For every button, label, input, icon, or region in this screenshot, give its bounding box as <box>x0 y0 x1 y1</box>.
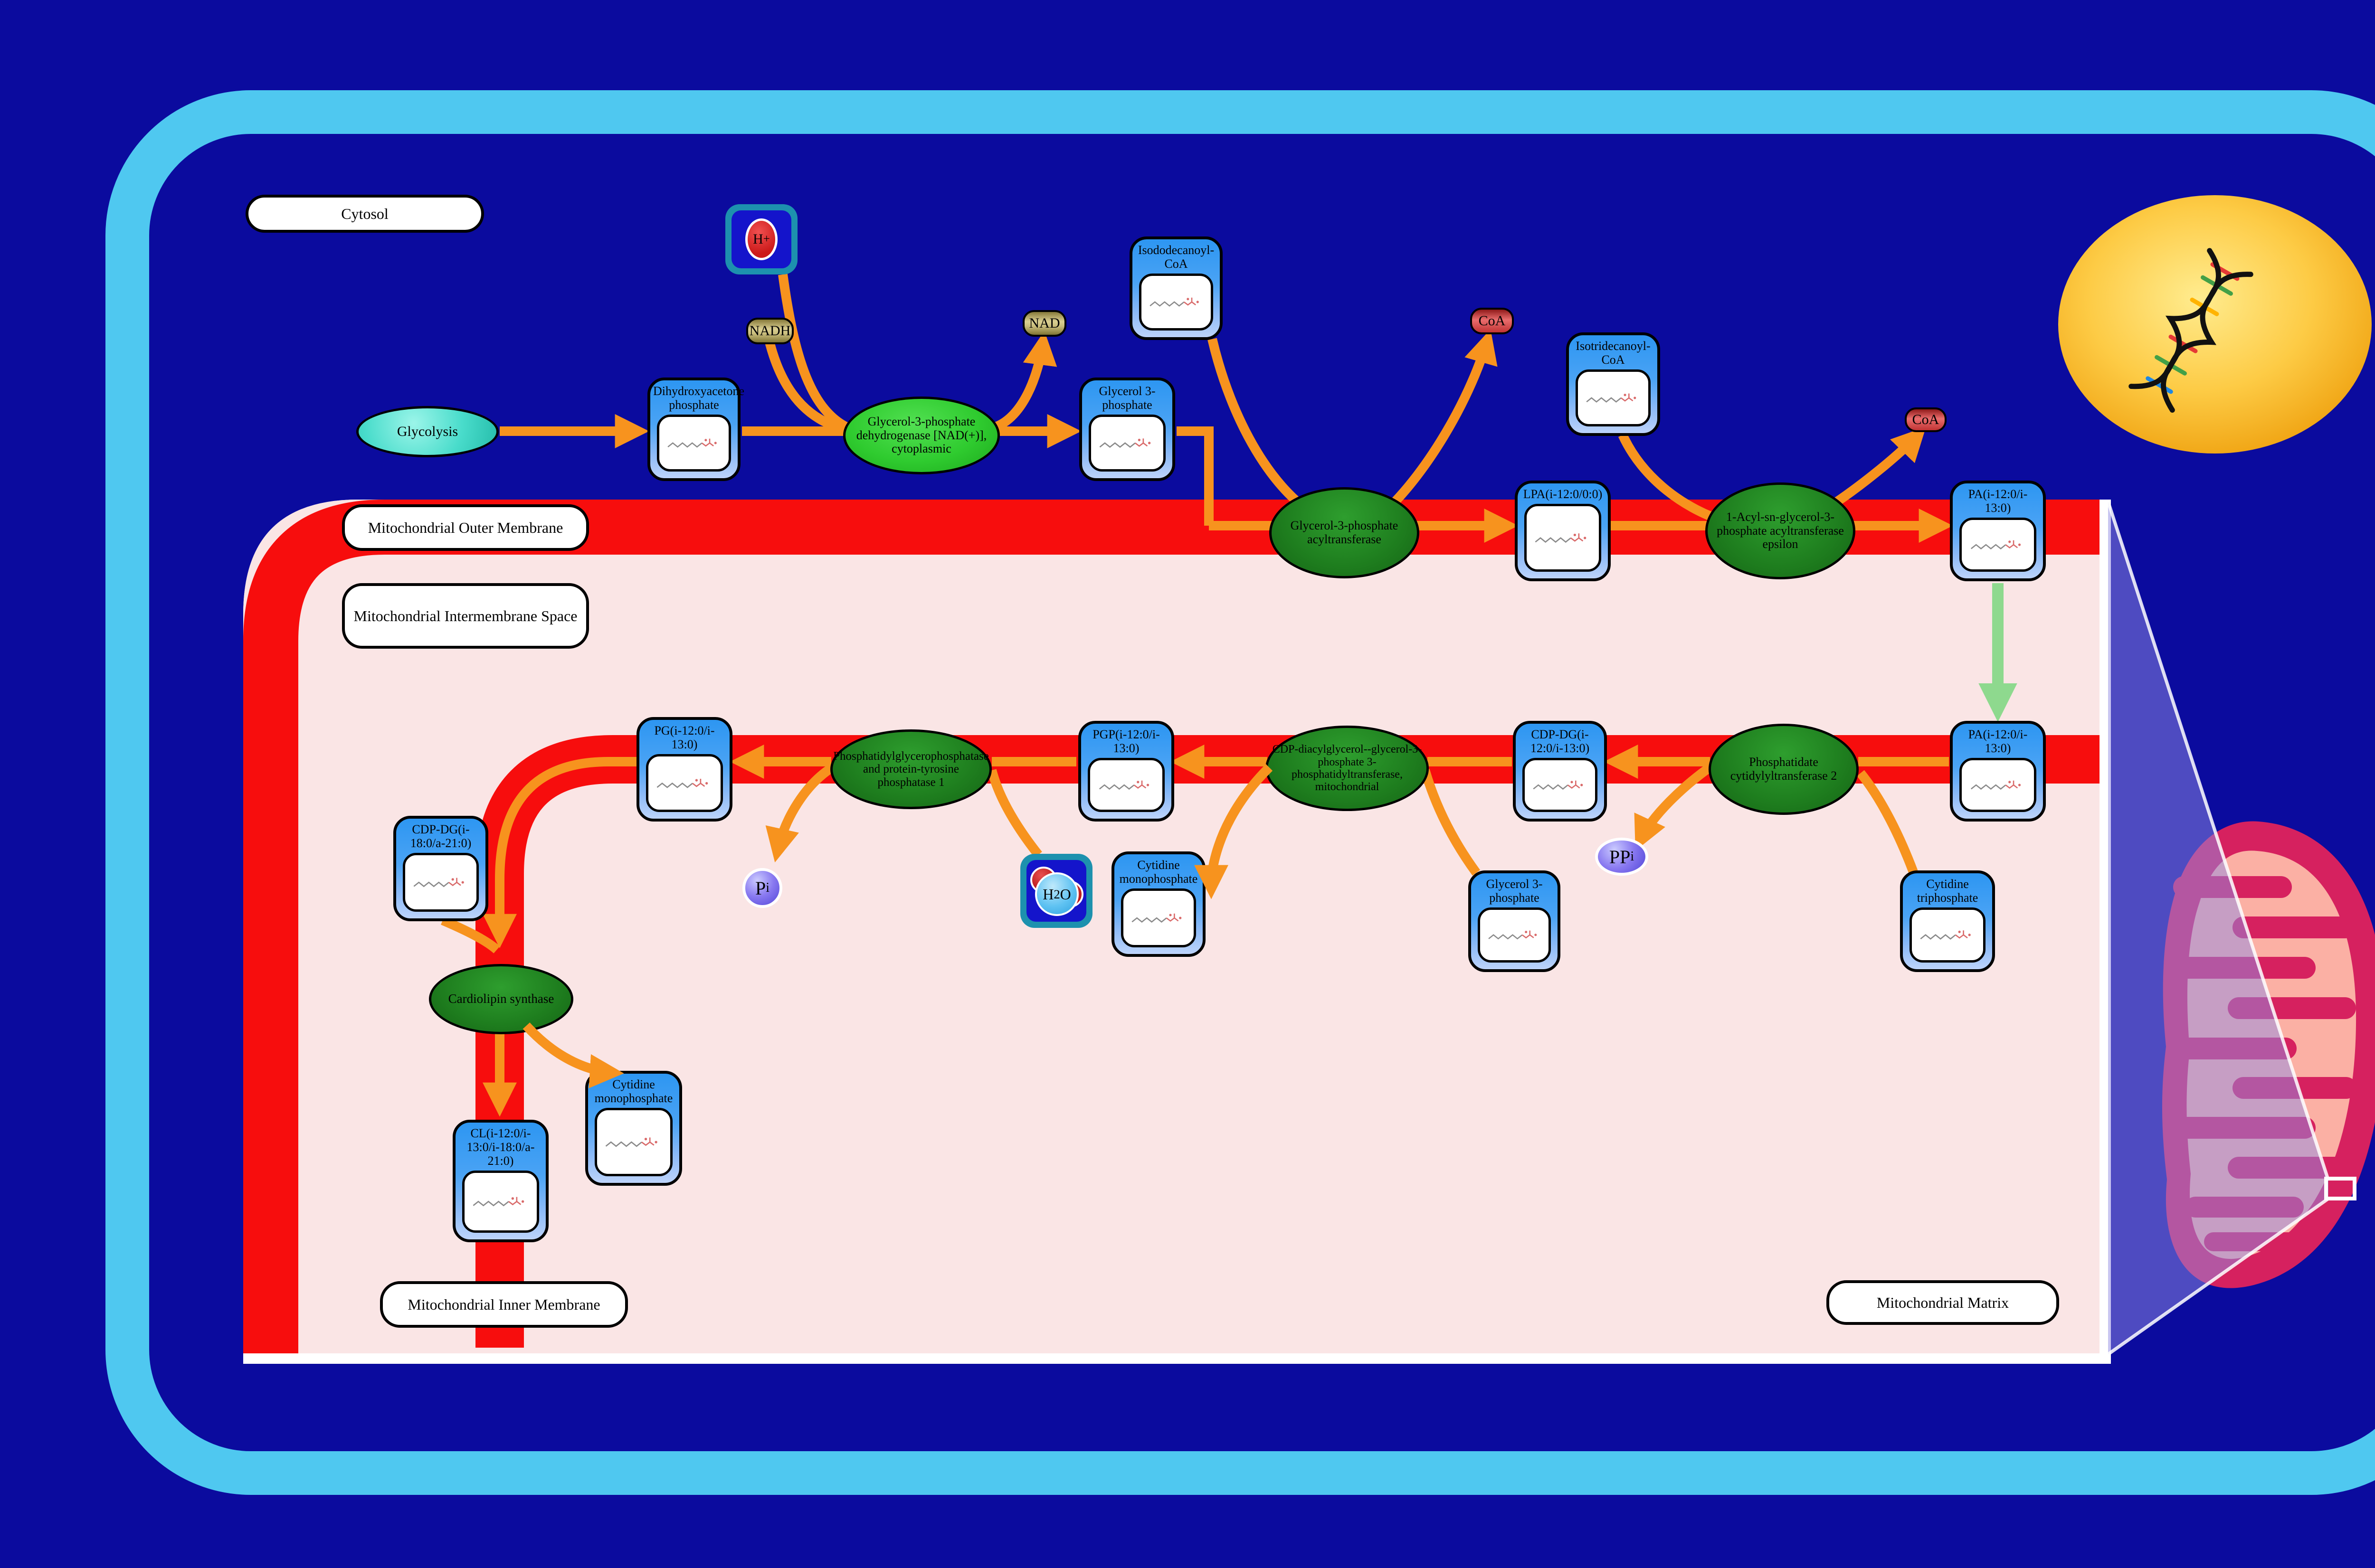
chemical-structure-icon <box>1088 758 1165 812</box>
chemical-structure-icon <box>1909 907 1985 963</box>
metabolite-label: CDP-DG(i-18:0/a-21:0) <box>396 819 485 851</box>
enzyme-cdp-dag-g3p-phosphatidyltransferase[interactable]: CDP-diacylglycerol--glycerol-3-phosphate… <box>1265 726 1429 811</box>
chemical-structure-icon <box>403 853 479 912</box>
compartment-label-text: Cytosol <box>341 205 389 223</box>
enzyme-label: 1-Acyl-sn-glycerol-3-phosphate acyltrans… <box>1708 509 1853 553</box>
compartment-label-text: Mitochondrial Matrix <box>1877 1294 2009 1312</box>
enzyme-label: Glycerol-3-phosphate acyltransferase <box>1272 517 1417 548</box>
cofactor-coa-2[interactable]: CoA <box>1905 407 1947 432</box>
chemical-structure-icon <box>1139 274 1213 331</box>
metabolite-label: PGP(i-12:0/i-13:0) <box>1081 724 1171 756</box>
metabolite-label: CDP-DG(i-12:0/i-13:0) <box>1516 724 1604 756</box>
enzyme-gpat[interactable]: Glycerol-3-phosphate acyltransferase <box>1269 487 1419 578</box>
enzyme-label: Phosphatidylglycerophosphatase and prote… <box>831 748 991 791</box>
chemical-structure-icon <box>1959 518 2036 572</box>
chemical-structure-icon <box>657 415 731 472</box>
metabolite-cdp-dg-1[interactable]: CDP-DG(i-12:0/i-13:0) <box>1513 721 1607 822</box>
enzyme-label: CDP-diacylglycerol--glycerol-3-phosphate… <box>1268 741 1426 795</box>
enzyme-agpat-epsilon[interactable]: 1-Acyl-sn-glycerol-3-phosphate acyltrans… <box>1705 482 1855 579</box>
metabolite-cytidine-triphosphate[interactable]: Cytidine triphosphate <box>1900 870 1995 972</box>
compartment-label-text: Mitochondrial Outer Membrane <box>368 519 563 537</box>
metabolite-cardiolipin[interactable]: CL(i-12:0/i-13:0/i-18:0/a-21:0) <box>453 1120 549 1242</box>
chemical-structure-icon <box>1089 415 1166 472</box>
pathway-node-glycolysis[interactable]: Glycolysis <box>356 406 499 457</box>
metabolite-glycerol-3-phosphate-cytosol[interactable]: Glycerol 3-phosphate <box>1079 378 1175 481</box>
metabolite-dhap[interactable]: Dihydroxyacetone phosphate <box>647 378 741 481</box>
metabolite-label: PA(i-12:0/i-13:0) <box>1953 724 2043 756</box>
metabolite-label: PA(i-12:0/i-13:0) <box>1953 483 2043 516</box>
metabolite-pa-inner[interactable]: PA(i-12:0/i-13:0) <box>1950 721 2046 822</box>
proton-icon: H+ <box>745 218 778 260</box>
metabolite-glycerol-3-phosphate-ims[interactable]: Glycerol 3-phosphate <box>1468 870 1560 972</box>
metabolite-label: CL(i-12:0/i-13:0/i-18:0/a-21:0) <box>456 1123 546 1169</box>
metabolite-isotridecanoyl-coa[interactable]: Isotridecanoyl-CoA <box>1566 332 1660 436</box>
enzyme-label: Cardiolipin synthase <box>446 990 556 1008</box>
metabolite-cdp-dg-2[interactable]: CDP-DG(i-18:0/a-21:0) <box>393 816 488 921</box>
chemical-structure-icon <box>595 1108 673 1176</box>
compartment-label-matrix: Mitochondrial Matrix <box>1826 1280 2059 1325</box>
pathway-canvas: CytosolMitochondrial Outer MembraneMitoc… <box>0 0 2375 1568</box>
chemical-structure-icon <box>462 1171 539 1233</box>
chemical-structure-icon <box>1522 758 1597 812</box>
metabolite-label: Glycerol 3-phosphate <box>1082 380 1172 413</box>
metabolite-pa-outer[interactable]: PA(i-12:0/i-13:0) <box>1950 481 2046 581</box>
enzyme-phosphatidate-cytidylyltransferase-2[interactable]: Phosphatidate cytidylyltransferase 2 <box>1709 724 1859 815</box>
compartment-label-outer-membrane: Mitochondrial Outer Membrane <box>342 504 589 551</box>
metabolite-pgp[interactable]: PGP(i-12:0/i-13:0) <box>1078 721 1174 822</box>
compartment-label-inner-membrane: Mitochondrial Inner Membrane <box>380 1281 628 1328</box>
chemical-structure-icon <box>1524 504 1601 572</box>
metabolite-label: Cytidine monophosphate <box>588 1074 679 1106</box>
cofactor-water[interactable]: H2O <box>1020 854 1092 928</box>
cofactor-nad[interactable]: NAD <box>1023 310 1066 337</box>
chemical-structure-icon <box>1959 758 2036 812</box>
enzyme-gpd-cytoplasmic[interactable]: Glycerol-3-phosphate dehydrogenase [NAD(… <box>843 397 1000 474</box>
enzyme-label: Glycerol-3-phosphate dehydrogenase [NAD(… <box>845 413 997 458</box>
cofactor-coa-1[interactable]: CoA <box>1470 308 1514 334</box>
chemical-structure-icon <box>646 754 723 812</box>
water-molecule-icon: H2O <box>1026 860 1086 922</box>
nucleus <box>2058 195 2372 453</box>
cofactor-proton[interactable]: H+ <box>725 204 798 274</box>
cofactor-pi[interactable]: Pi <box>742 868 782 908</box>
chemical-structure-icon <box>1576 369 1651 426</box>
metabolite-label: Glycerol 3-phosphate <box>1471 873 1558 906</box>
metabolite-isododecanoyl-coa[interactable]: Isododecanoyl-CoA <box>1130 236 1223 340</box>
metabolite-label: Cytidine triphosphate <box>1903 873 1992 906</box>
metabolite-label: Isotridecanoyl-CoA <box>1569 335 1657 368</box>
metabolite-label: Isododecanoyl-CoA <box>1132 239 1220 272</box>
compartment-label-text: Mitochondrial Inner Membrane <box>408 1296 600 1313</box>
metabolite-pg[interactable]: PG(i-12:0/i-13:0) <box>636 717 732 822</box>
enzyme-cardiolipin-synthase[interactable]: Cardiolipin synthase <box>429 964 573 1034</box>
metabolite-cytidine-monophosphate-2[interactable]: Cytidine monophosphate <box>585 1071 682 1186</box>
chemical-structure-icon <box>1478 907 1551 963</box>
pathway-node-label: Glycolysis <box>397 424 458 440</box>
enzyme-label: Phosphatidate cytidylyltransferase 2 <box>1711 754 1856 784</box>
metabolite-lpa[interactable]: LPA(i-12:0/0:0) <box>1515 481 1611 581</box>
chemical-structure-icon <box>1121 888 1196 947</box>
metabolite-label: LPA(i-12:0/0:0) <box>1518 483 1608 502</box>
metabolite-label: PG(i-12:0/i-13:0) <box>639 720 730 752</box>
enzyme-pgp-phosphatase[interactable]: Phosphatidylglycerophosphatase and prote… <box>830 729 992 809</box>
metabolite-label: Dihydroxyacetone phosphate <box>650 380 738 413</box>
metabolite-label: Cytidine monophosphate <box>1114 854 1203 887</box>
metabolite-cytidine-monophosphate-1[interactable]: Cytidine monophosphate <box>1111 851 1206 957</box>
compartment-label-cytosol: Cytosol <box>246 195 484 233</box>
cofactor-nadh[interactable]: NADH <box>746 318 794 344</box>
compartment-label-intermembrane-space: Mitochondrial Intermembrane Space <box>342 583 589 649</box>
compartment-label-text: Mitochondrial Intermembrane Space <box>354 607 578 625</box>
cofactor-ppi[interactable]: PPi <box>1595 838 1648 876</box>
